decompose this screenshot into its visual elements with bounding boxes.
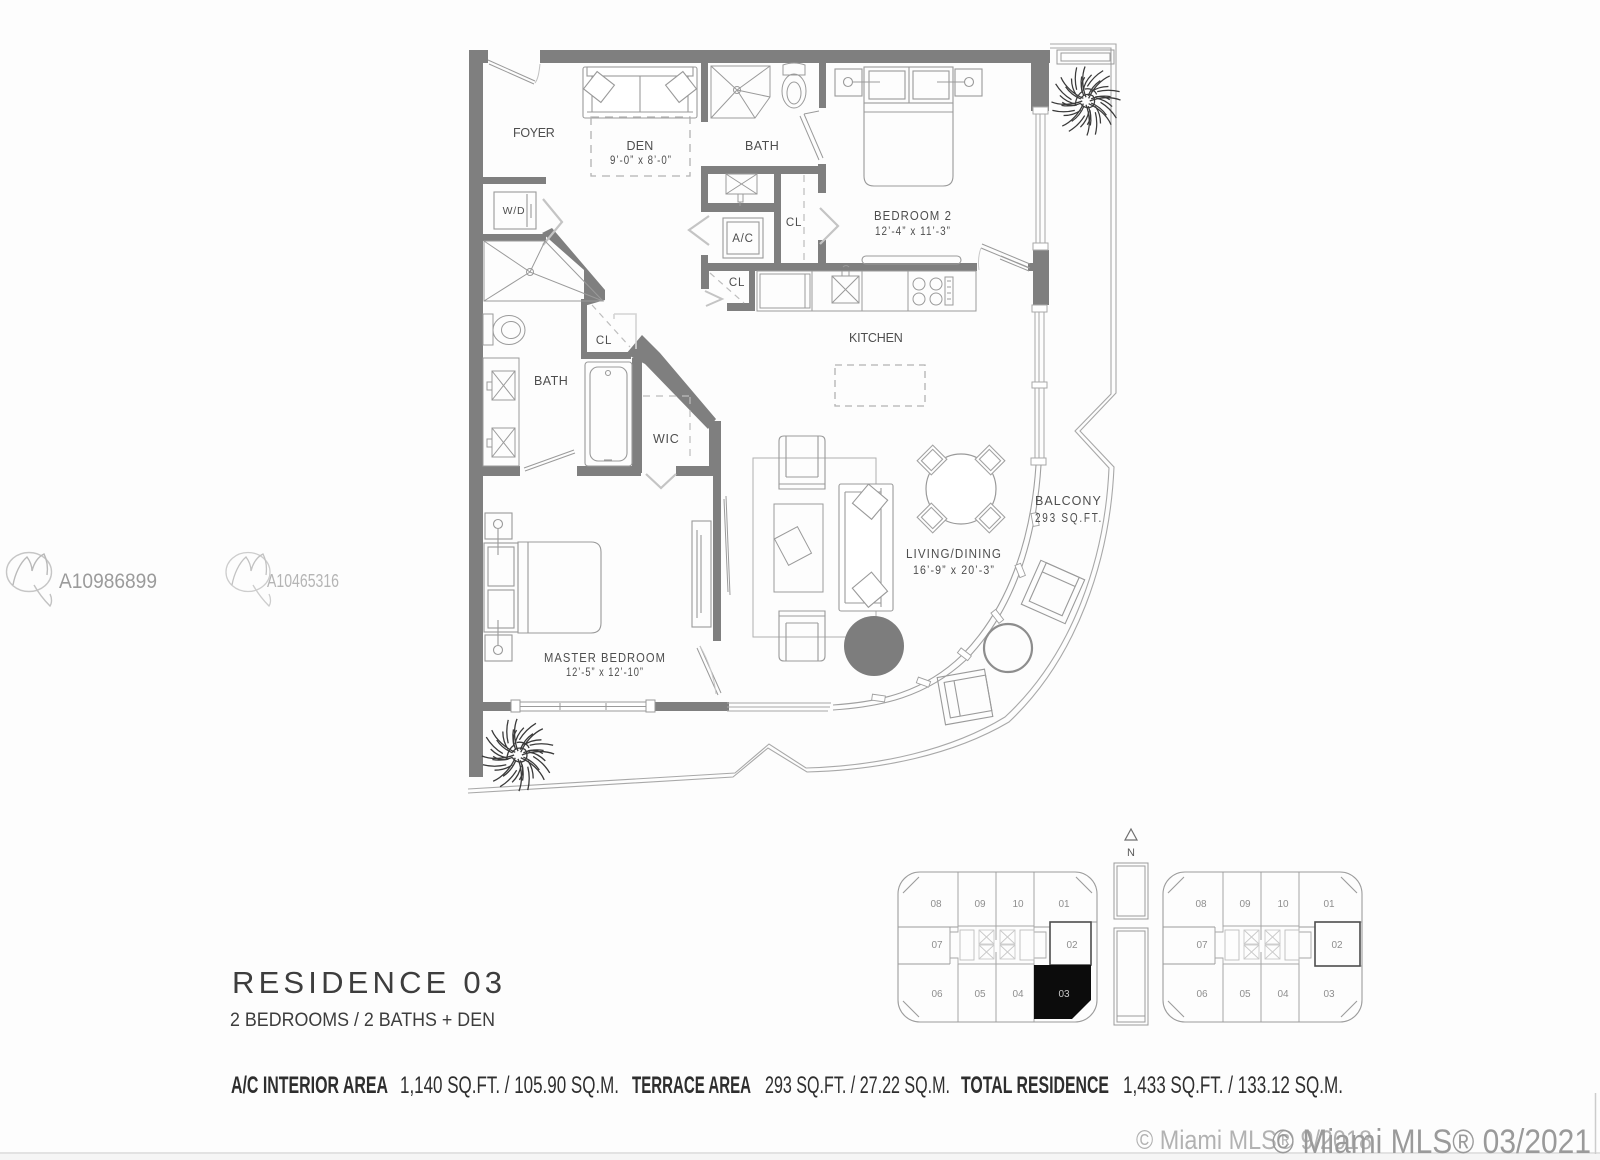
svg-text:A10986899: A10986899 bbox=[59, 570, 157, 593]
svg-text:02: 02 bbox=[1066, 940, 1078, 951]
svg-text:04: 04 bbox=[1277, 989, 1289, 1000]
svg-text:12’-5” x 12’-10”: 12’-5” x 12’-10” bbox=[566, 667, 644, 679]
svg-text:BATH: BATH bbox=[745, 139, 781, 153]
svg-text:01: 01 bbox=[1058, 899, 1070, 910]
svg-text:10: 10 bbox=[1012, 899, 1024, 910]
svg-text:09: 09 bbox=[1239, 899, 1251, 910]
svg-text:04: 04 bbox=[1012, 989, 1024, 1000]
svg-text:05: 05 bbox=[1239, 989, 1251, 1000]
svg-text:CL: CL bbox=[786, 217, 802, 229]
svg-text:WIC: WIC bbox=[653, 432, 681, 446]
svg-text:TOTAL RESIDENCE: TOTAL RESIDENCE bbox=[961, 1072, 1109, 1099]
svg-text:BALCONY: BALCONY bbox=[1035, 494, 1103, 508]
svg-text:09: 09 bbox=[974, 899, 986, 910]
svg-text:MASTER BEDROOM: MASTER BEDROOM bbox=[544, 650, 666, 665]
svg-text:293 SQ.FT. / 27.22 SQ.M.: 293 SQ.FT. / 27.22 SQ.M. bbox=[765, 1072, 950, 1099]
svg-text:DEN: DEN bbox=[627, 139, 656, 153]
svg-text:1,433 SQ.FT. / 133.12 SQ.M.: 1,433 SQ.FT. / 133.12 SQ.M. bbox=[1123, 1072, 1343, 1099]
svg-text:LIVING/DINING: LIVING/DINING bbox=[906, 546, 1002, 561]
svg-text:CL: CL bbox=[596, 335, 612, 347]
svg-text:07: 07 bbox=[931, 940, 943, 951]
svg-text:03: 03 bbox=[1323, 989, 1335, 1000]
svg-text:1,140 SQ.FT. / 105.90 SQ.M.: 1,140 SQ.FT. / 105.90 SQ.M. bbox=[400, 1072, 619, 1099]
svg-text:TERRACE AREA: TERRACE AREA bbox=[632, 1072, 751, 1099]
svg-text:9’-0” x 8’-0”: 9’-0” x 8’-0” bbox=[610, 155, 672, 167]
svg-text:© Miami MLS® 03/2021: © Miami MLS® 03/2021 bbox=[1272, 1123, 1591, 1160]
svg-text:A10465316: A10465316 bbox=[267, 571, 339, 591]
svg-text:12’-4” x 11’-3”: 12’-4” x 11’-3” bbox=[875, 226, 951, 238]
svg-text:08: 08 bbox=[930, 899, 942, 910]
svg-text:08: 08 bbox=[1195, 899, 1207, 910]
svg-text:06: 06 bbox=[931, 989, 943, 1000]
svg-text:N: N bbox=[1127, 847, 1135, 859]
svg-text:FOYER: FOYER bbox=[513, 126, 557, 140]
svg-text:A/C: A/C bbox=[732, 233, 754, 245]
svg-text:A/C INTERIOR AREA: A/C INTERIOR AREA bbox=[231, 1072, 388, 1099]
svg-text:KITCHEN: KITCHEN bbox=[849, 331, 905, 345]
svg-text:01: 01 bbox=[1323, 899, 1335, 910]
svg-text:BATH: BATH bbox=[534, 374, 570, 388]
svg-text:03: 03 bbox=[1058, 989, 1070, 1000]
svg-text:BEDROOM 2: BEDROOM 2 bbox=[874, 208, 952, 223]
svg-text:07: 07 bbox=[1196, 940, 1208, 951]
svg-text:10: 10 bbox=[1277, 899, 1289, 910]
svg-text:293 SQ.FT.: 293 SQ.FT. bbox=[1035, 511, 1103, 525]
svg-text:CL: CL bbox=[729, 277, 745, 289]
svg-text:06: 06 bbox=[1196, 989, 1208, 1000]
svg-text:2 BEDROOMS / 2 BATHS + DEN: 2 BEDROOMS / 2 BATHS + DEN bbox=[230, 1009, 495, 1031]
svg-text:02: 02 bbox=[1331, 940, 1343, 951]
svg-text:05: 05 bbox=[974, 989, 986, 1000]
svg-text:W/D: W/D bbox=[503, 205, 526, 217]
svg-text:16’-9” x 20’-3”: 16’-9” x 20’-3” bbox=[913, 565, 995, 577]
